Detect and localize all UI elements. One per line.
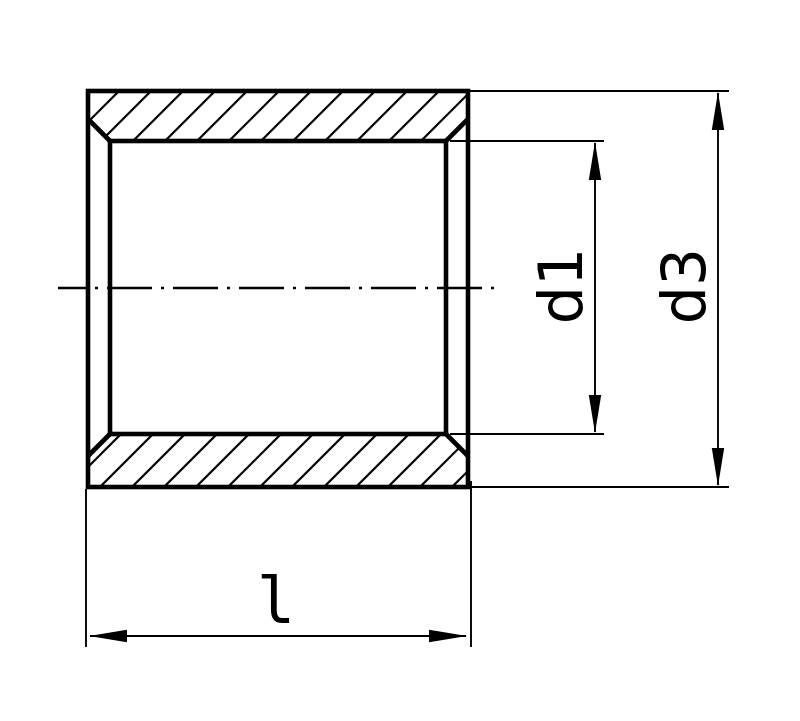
outer-diameter-label: d3 xyxy=(649,248,719,324)
bushing-section-drawing: d1 d3 l xyxy=(0,0,800,721)
chamfer-edge-top-left xyxy=(88,119,110,141)
d1-arrowhead-top xyxy=(589,142,601,180)
chamfer-edge-top-right xyxy=(446,119,468,141)
length-arrowhead-left xyxy=(89,630,127,642)
length-label: l xyxy=(257,564,296,638)
bore-diameter-label: d1 xyxy=(526,248,596,324)
d3-arrowhead-top xyxy=(712,92,724,130)
length-arrowhead-right xyxy=(429,630,467,642)
chamfer-edge-bottom-right xyxy=(446,434,468,456)
chamfer-edge-bottom-left xyxy=(88,434,110,456)
d3-arrowhead-bottom xyxy=(712,448,724,486)
d1-arrowhead-bottom xyxy=(589,395,601,433)
